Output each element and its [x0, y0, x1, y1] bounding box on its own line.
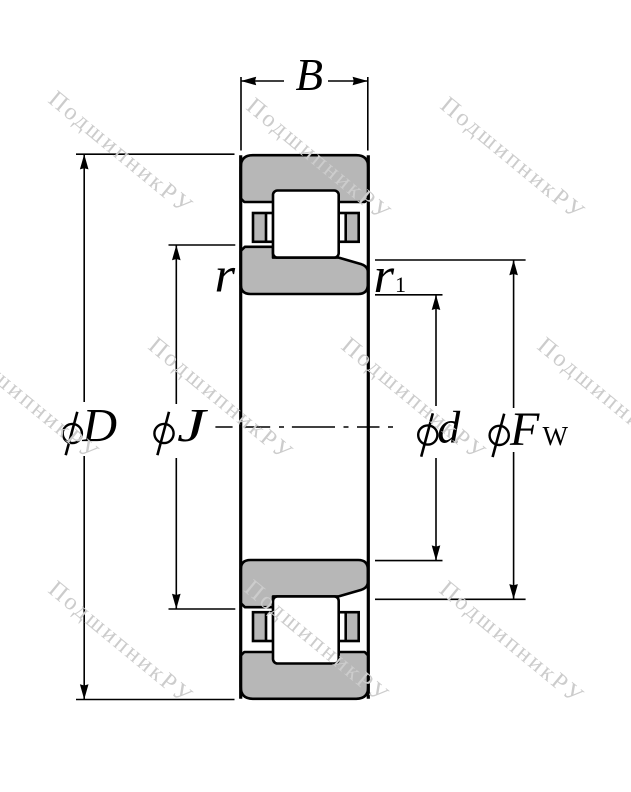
svg-text:W: W [543, 421, 569, 451]
svg-text:ПодшипникРУ: ПодшипникРУ [143, 333, 298, 467]
svg-text:J: J [177, 400, 209, 453]
svg-text:r: r [215, 247, 236, 303]
svg-text:ПодшипникРУ: ПодшипникРУ [336, 333, 491, 467]
svg-text:ПодшипникРУ: ПодшипникРУ [43, 86, 198, 220]
svg-text:1: 1 [395, 272, 406, 297]
svg-text:r: r [374, 247, 395, 303]
svg-text:B: B [296, 50, 324, 100]
svg-text:F: F [509, 403, 540, 456]
svg-text:ПодшипникРУ: ПодшипникРУ [434, 576, 589, 710]
svg-text:ПодшипникРУ: ПодшипникРУ [435, 92, 590, 226]
